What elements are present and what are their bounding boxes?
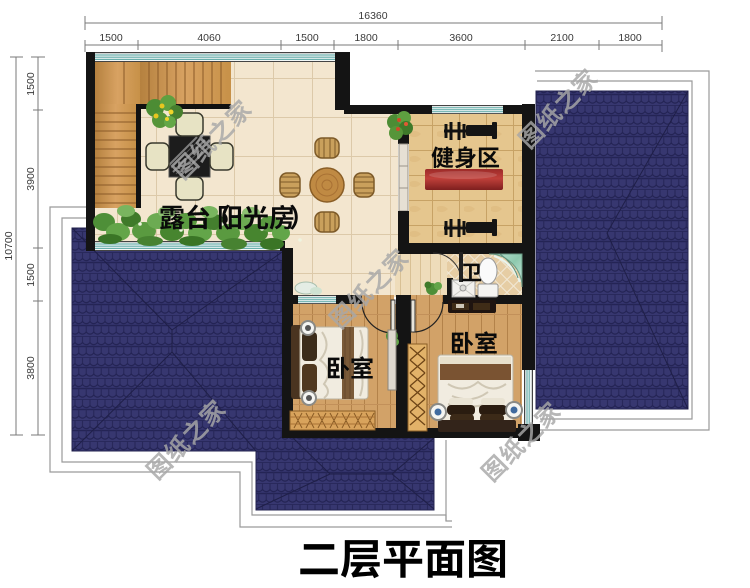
svg-text:1800: 1800 xyxy=(618,32,642,44)
svg-text:1500: 1500 xyxy=(99,32,123,44)
svg-text:3600: 3600 xyxy=(449,32,473,44)
svg-text:1500: 1500 xyxy=(295,32,319,44)
svg-text:1800: 1800 xyxy=(354,32,378,44)
svg-text:16360: 16360 xyxy=(358,10,387,22)
svg-text:3800: 3800 xyxy=(25,356,37,380)
svg-text:4060: 4060 xyxy=(197,32,221,44)
svg-text:1500: 1500 xyxy=(25,263,37,287)
svg-text:1500: 1500 xyxy=(25,72,37,96)
svg-text:10700: 10700 xyxy=(3,231,15,260)
svg-text:3900: 3900 xyxy=(25,167,37,191)
svg-text:2100: 2100 xyxy=(550,32,574,44)
